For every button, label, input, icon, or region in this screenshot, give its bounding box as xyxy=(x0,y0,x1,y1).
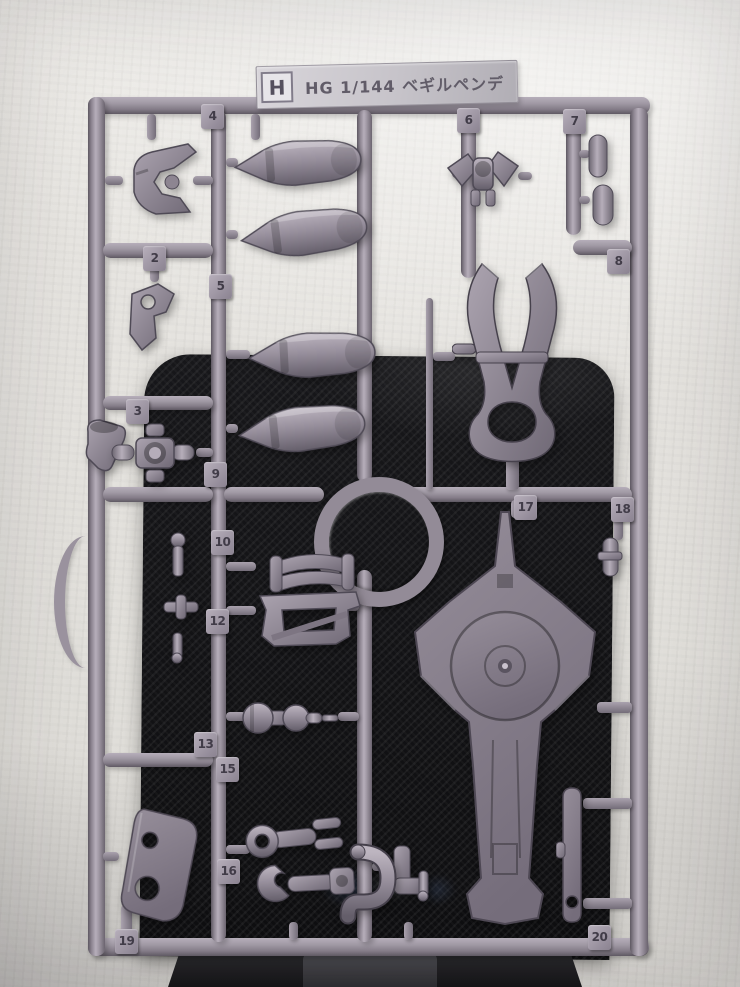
part-number-tag-9: 9 xyxy=(204,462,227,487)
sprue-gate-rod xyxy=(426,298,433,490)
runner-title-text: HG 1/144 ベギルペンデ xyxy=(305,70,505,99)
sprue-gate-stub xyxy=(226,230,238,239)
part-shield xyxy=(405,508,605,928)
part-number-tag-18: 18 xyxy=(611,497,634,522)
part-number-tag-4: 4 xyxy=(201,104,224,129)
part-curved-strip xyxy=(54,536,117,668)
part-number-tag-12: 12 xyxy=(206,609,229,634)
part-winged-joint xyxy=(442,144,524,212)
part-number-tag-8: 8 xyxy=(607,249,630,274)
part-number-tag-15: 15 xyxy=(216,757,239,782)
part-number-tag-6: 6 xyxy=(457,108,480,133)
part-knob-connector xyxy=(238,692,343,744)
part-ball-pin xyxy=(168,532,188,580)
part-number-tag-13: 13 xyxy=(194,732,217,757)
part-number-tag-7: 7 xyxy=(563,109,586,134)
part-frame-bracket xyxy=(252,584,367,656)
runner-horizontal-left-mid xyxy=(103,396,213,410)
part-number-tag-2: 2 xyxy=(143,246,166,271)
part-hook xyxy=(312,842,397,927)
runner-label-plate: H HG 1/144 ベギルペンデ xyxy=(256,60,519,109)
part-t-joint xyxy=(160,592,202,622)
part-cylinder-joint xyxy=(106,418,202,488)
photo-model-kit-runner: H HG 1/144 ベギルペンデ xyxy=(0,0,740,987)
runner-letter-badge: H xyxy=(261,71,294,103)
part-claw-anchor xyxy=(452,256,572,466)
part-number-tag-20: 20 xyxy=(588,925,611,950)
part-number-tag-5: 5 xyxy=(209,274,232,299)
display-stand-column xyxy=(303,952,437,987)
part-thruster-pod-3 xyxy=(245,323,380,388)
part-number-tag-16: 16 xyxy=(217,859,240,884)
frame-bar-right xyxy=(630,108,648,956)
runner-horizontal-center-left xyxy=(103,487,213,502)
part-number-tag-10: 10 xyxy=(211,530,234,555)
part-flat-plate xyxy=(102,800,218,938)
part-number-tag-19: 19 xyxy=(115,929,138,954)
sprue-gate-stub xyxy=(289,922,298,940)
part-c-bracket xyxy=(118,140,210,222)
sprue-gate-stub xyxy=(226,562,256,571)
part-small-cylinder-2 xyxy=(590,182,616,228)
part-angle-bracket xyxy=(122,278,184,360)
sprue-gate-stub xyxy=(579,196,590,204)
sprue-gate-stub xyxy=(147,114,156,140)
part-small-pin xyxy=(168,630,186,664)
part-thruster-pod-2 xyxy=(235,196,373,270)
part-thruster-pod-1 xyxy=(230,129,366,196)
part-number-tag-3: 3 xyxy=(126,399,149,424)
part-small-cylinder-1 xyxy=(586,132,610,180)
runner-horizontal-center-mid xyxy=(224,487,324,502)
frame-bar-left xyxy=(88,97,105,956)
part-number-tag-17: 17 xyxy=(514,495,537,520)
